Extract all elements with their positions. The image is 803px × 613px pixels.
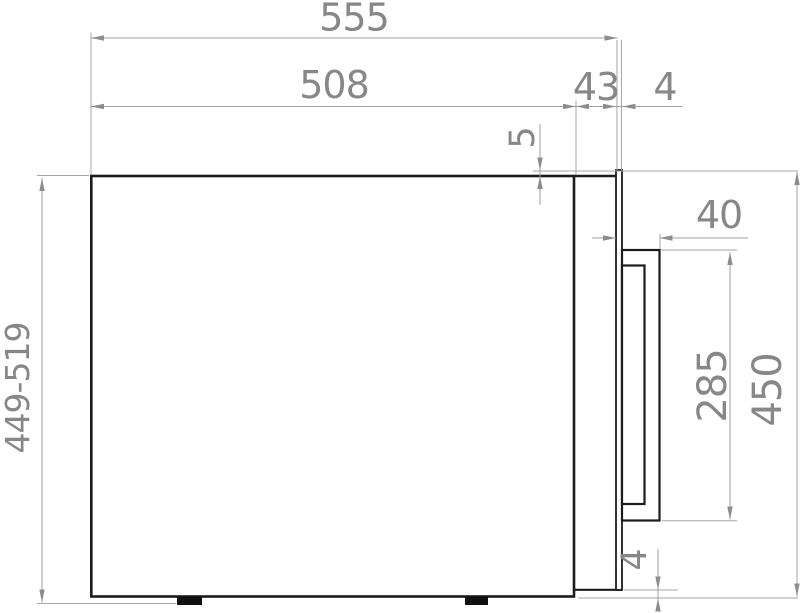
appliance-side-view-drawing: 555 508 43 4 5 40 285 450 — [0, 0, 803, 613]
door-handle-inner — [622, 266, 645, 505]
arrow-left — [91, 35, 104, 40]
dim-label-508: 508 — [299, 63, 369, 107]
arrow-left — [91, 104, 104, 109]
dimension-total-depth: 555 — [91, 0, 618, 41]
arrow-down — [794, 584, 799, 597]
arrow-up — [655, 599, 660, 612]
arrow-up — [794, 172, 799, 185]
arrow-right — [605, 35, 618, 40]
arrow-down — [39, 590, 44, 603]
dim-label-449-519: 449-519 — [0, 323, 37, 454]
arrow-up — [727, 252, 732, 265]
foot-rear — [177, 597, 202, 606]
dim-label-555: 555 — [319, 0, 389, 40]
dim-label-285: 285 — [690, 349, 736, 422]
dimension-front-height: 450 — [745, 172, 800, 597]
arrow-up — [39, 178, 44, 191]
technical-drawing-canvas: 555 508 43 4 5 40 285 450 — [0, 0, 803, 613]
dim-label-40: 40 — [696, 193, 742, 237]
foot-front — [465, 597, 488, 606]
dim-label-43: 43 — [573, 65, 619, 109]
dim-label-4-bottom: 4 — [615, 549, 655, 570]
arrow-left — [660, 235, 673, 240]
dimension-height-range: 449-519 — [0, 178, 45, 603]
arrow-right — [603, 235, 616, 240]
arrow-left — [623, 104, 636, 109]
arrow-down — [655, 577, 660, 590]
dimension-depth-row: 508 43 4 — [91, 63, 682, 109]
appliance-outline — [91, 170, 659, 605]
arrow-down — [727, 507, 732, 520]
cabinet-body-outline — [91, 176, 574, 597]
dim-label-4-door: 4 — [653, 65, 676, 109]
dim-label-450: 450 — [745, 353, 791, 426]
dimension-handle-height: 285 — [690, 252, 736, 520]
dim-label-5: 5 — [503, 127, 543, 148]
arrow-down — [537, 158, 542, 171]
